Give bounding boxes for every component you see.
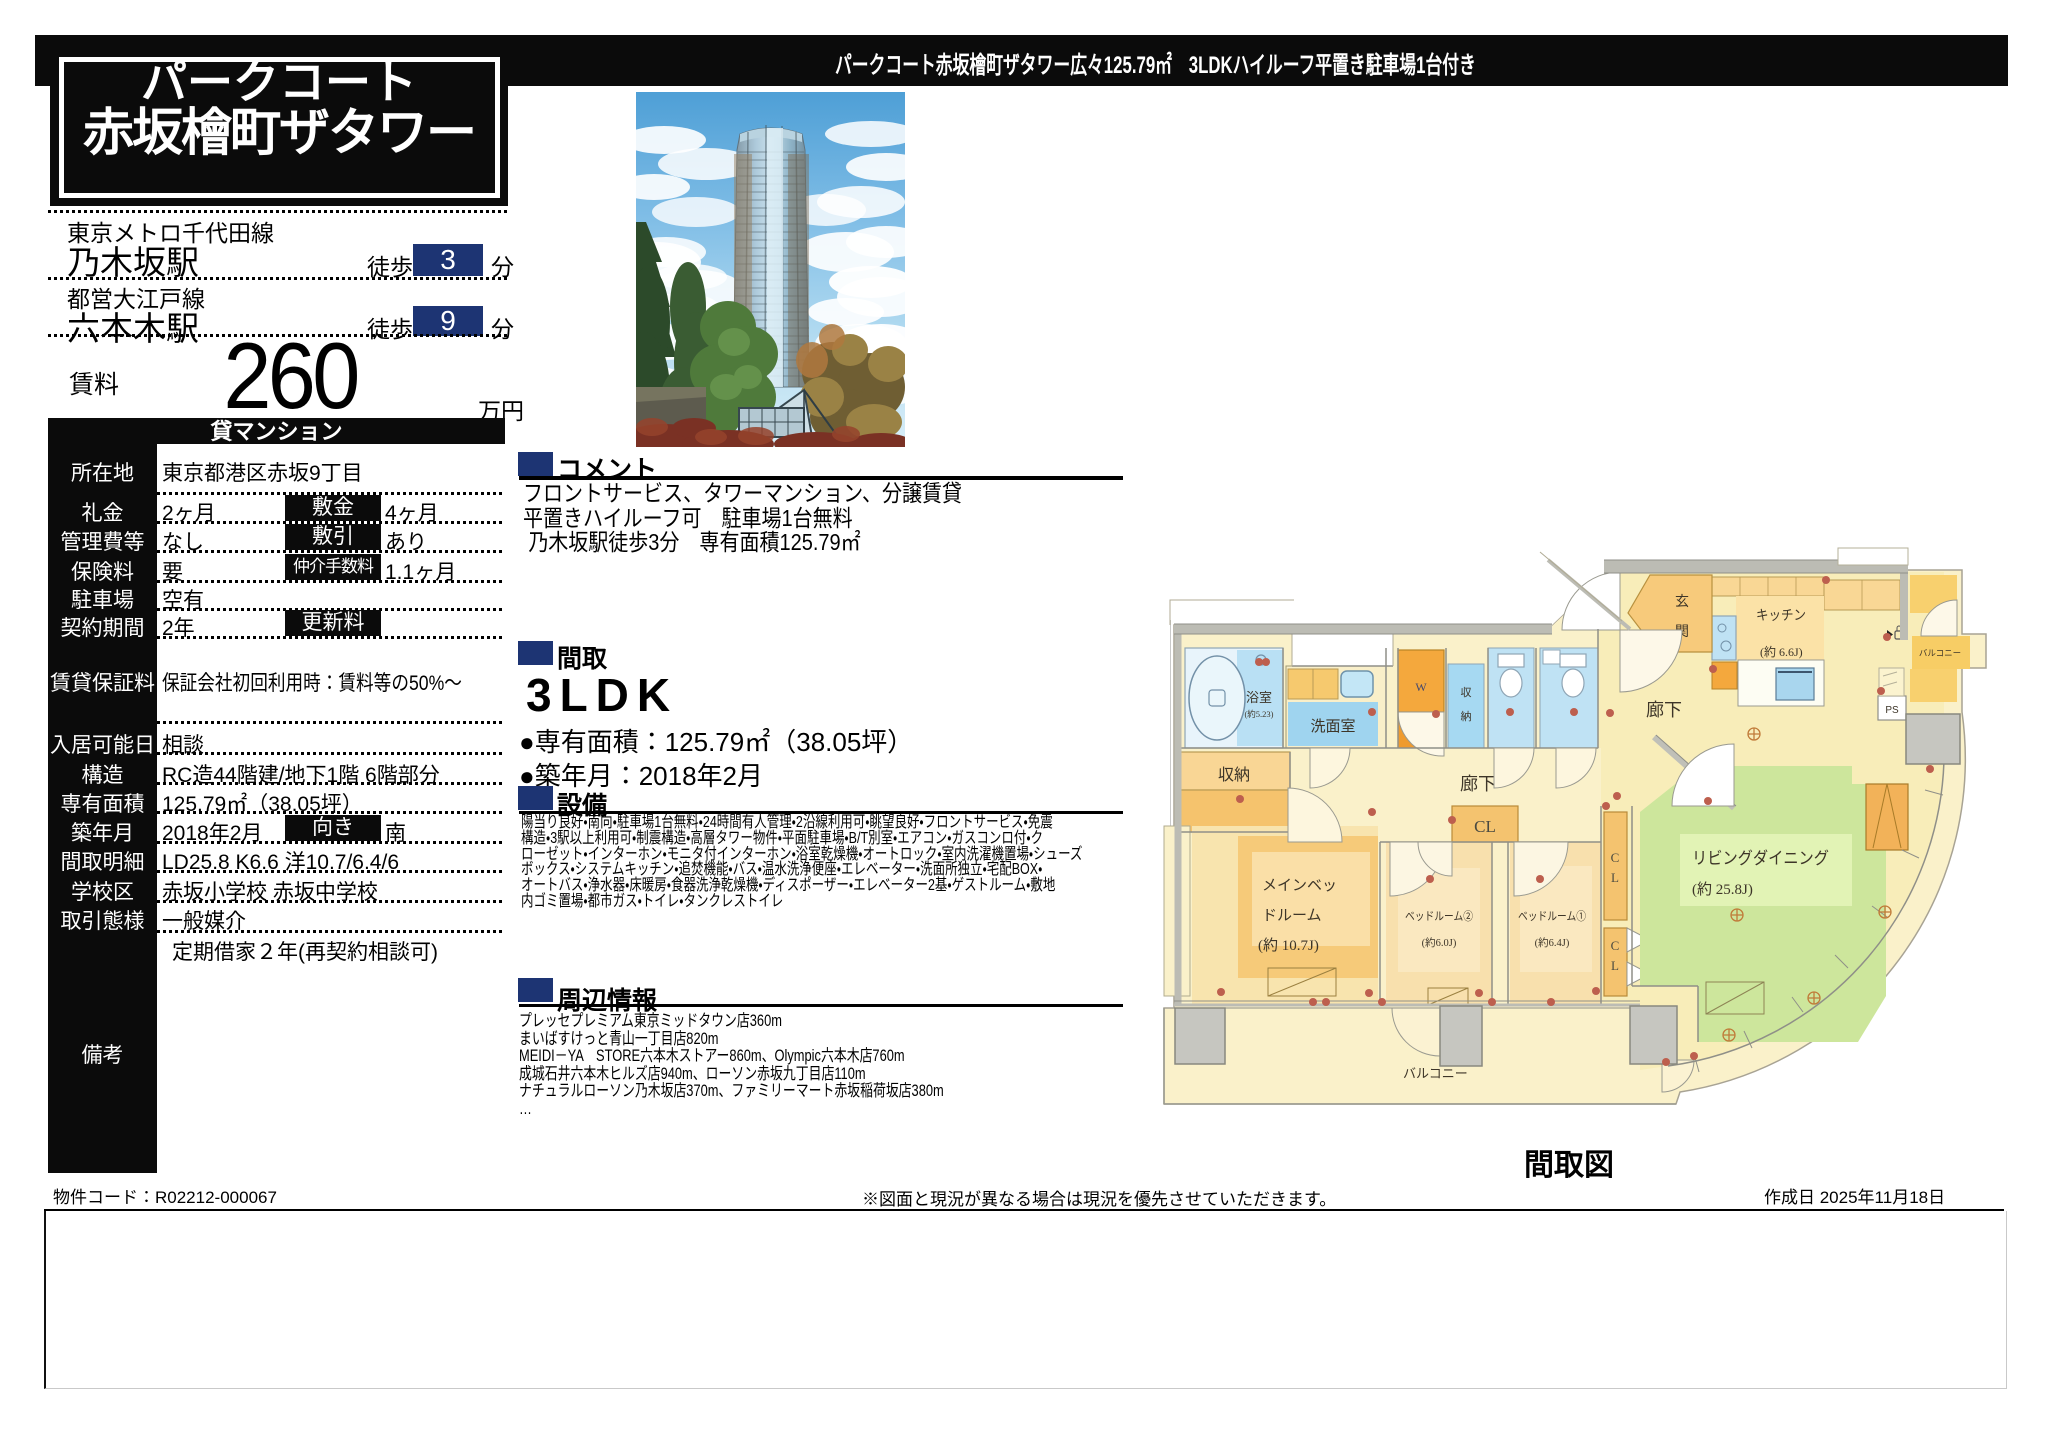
svg-text:W: W	[1415, 680, 1427, 694]
svg-text:PS: PS	[1885, 705, 1899, 716]
svg-text:ベッドルーム①: ベッドルーム①	[1518, 910, 1586, 923]
svg-text:キッチン: キッチン	[1756, 609, 1806, 624]
svg-text:リビングダイニング: リビングダイニング	[1692, 849, 1829, 868]
svg-text:メインベッ: メインベッ	[1262, 878, 1337, 894]
svg-text:L: L	[1611, 958, 1619, 973]
svg-text:洗面室: 洗面室	[1310, 718, 1355, 735]
svg-text:浴室: 浴室	[1246, 690, 1272, 705]
svg-text:収: 収	[1461, 686, 1472, 699]
svg-text:ドルーム: ドルーム	[1262, 908, 1322, 924]
svg-text:廊下: 廊下	[1646, 700, 1682, 720]
svg-text:(約 10.7J): (約 10.7J)	[1258, 937, 1319, 954]
svg-text:L: L	[1611, 870, 1619, 885]
svg-text:収納: 収納	[1218, 766, 1250, 784]
svg-text:納: 納	[1461, 709, 1472, 723]
svg-text:(約 6.6J): (約 6.6J)	[1760, 644, 1803, 659]
svg-text:バルコニー: バルコニー	[1919, 648, 1961, 658]
svg-text:バルコニー: バルコニー	[1403, 1066, 1468, 1081]
svg-text:(約5.23): (約5.23)	[1244, 709, 1273, 719]
svg-text:CL: CL	[1474, 817, 1496, 836]
svg-text:ベッドルーム②: ベッドルーム②	[1405, 910, 1473, 923]
svg-text:C: C	[1611, 938, 1620, 953]
svg-text:(約6.4J): (約6.4J)	[1535, 936, 1570, 949]
svg-text:C: C	[1611, 850, 1620, 865]
svg-text:玄: 玄	[1675, 594, 1689, 610]
svg-text:(約 25.8J): (約 25.8J)	[1692, 881, 1753, 898]
svg-text:(約6.0J): (約6.0J)	[1422, 936, 1457, 949]
svg-text:廊下: 廊下	[1460, 774, 1496, 794]
